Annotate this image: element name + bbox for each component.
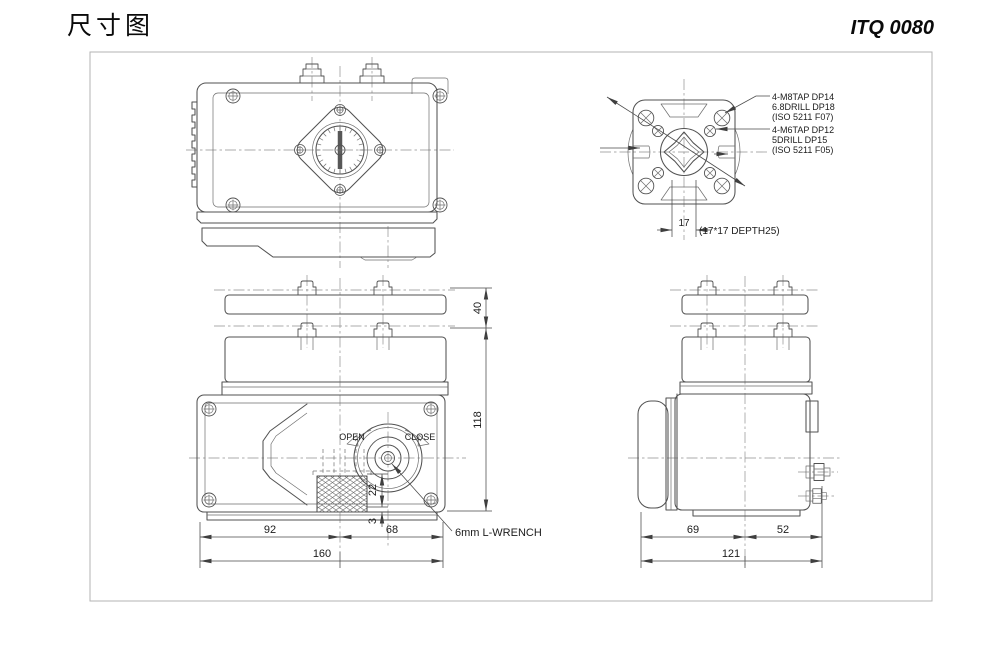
m6-bolt-hole: [704, 125, 715, 136]
dim-40: 40: [472, 302, 484, 314]
cover-screw: [226, 198, 240, 212]
wrench-note: 6mm L-WRENCH: [455, 527, 542, 539]
dim-52: 52: [777, 524, 789, 536]
main-body-side: [675, 394, 810, 510]
flange-note2-line2: 5DRILL DP15: [772, 135, 827, 145]
plate-screw: [335, 105, 346, 116]
top-cover: [225, 295, 446, 314]
dim-69: 69: [687, 524, 699, 536]
dim-92: 92: [264, 524, 276, 536]
side-view: 69 52 121: [628, 275, 840, 568]
drive-bushing: [317, 476, 367, 512]
dim-118: 118: [472, 411, 484, 429]
dim-160: 160: [313, 548, 331, 560]
front-view: OPEN CLOSE 6mm L-WRENCH 22 3 92 68 160 4…: [189, 275, 542, 568]
m8-bolt-hole: [638, 178, 654, 194]
flange-note1-line3: (ISO 5211 F07): [772, 112, 833, 122]
flange-note2-line1: 4-M6TAP DP12: [772, 125, 834, 135]
body-screw: [202, 493, 216, 507]
top-view: [186, 57, 454, 268]
flange-note1-line2: 6.8DRILL DP18: [772, 102, 835, 112]
chevron-emboss: [263, 404, 307, 505]
dim-68: 68: [386, 524, 398, 536]
cover-screw: [433, 198, 447, 212]
plate-screw: [335, 185, 346, 196]
m6-bolt-hole: [704, 167, 715, 178]
flange-note2-line3: (ISO 5211 F05): [772, 145, 833, 155]
terminal-bracket: [412, 78, 448, 94]
dimension-drawing: 17 (17*17 DEPTH25) 4-M8TAP DP14 6.8DRILL…: [0, 0, 1000, 648]
upper-housing: [225, 337, 446, 382]
close-label: CLOSE: [405, 432, 436, 442]
dim-base-3: 3: [367, 518, 379, 524]
m8-bolt-hole: [714, 178, 730, 194]
housing-collar-side: [680, 382, 812, 394]
heat-sink-ribs: [192, 102, 197, 187]
wrench-leader: [392, 464, 452, 531]
housing-collar: [222, 382, 448, 395]
dim-121: 121: [722, 548, 740, 560]
motor-housing: [638, 401, 668, 508]
terminal-cover: [806, 401, 818, 432]
socket-size-note: (17*17 DEPTH25): [699, 226, 780, 237]
base-plate: [202, 228, 435, 257]
plate-screw: [375, 145, 386, 156]
body-screw: [424, 402, 438, 416]
cover-screw: [433, 89, 447, 103]
cover-screw: [226, 89, 240, 103]
drawing-sheet: 尺寸图 ITQ 0080: [0, 0, 1000, 648]
bottom-flange-view: 17 (17*17 DEPTH25) 4-M8TAP DP14 6.8DRILL…: [600, 79, 835, 240]
body-screw: [202, 402, 216, 416]
dim-flange-17: 17: [678, 218, 690, 229]
m6-bolt-hole: [652, 167, 663, 178]
open-label: OPEN: [339, 432, 365, 442]
flange-note1-line1: 4-M8TAP DP14: [772, 92, 834, 102]
body-screw: [424, 493, 438, 507]
m8-bolt-hole: [714, 110, 730, 126]
dim-shaft-22: 22: [367, 484, 379, 496]
plate-screw: [295, 145, 306, 156]
